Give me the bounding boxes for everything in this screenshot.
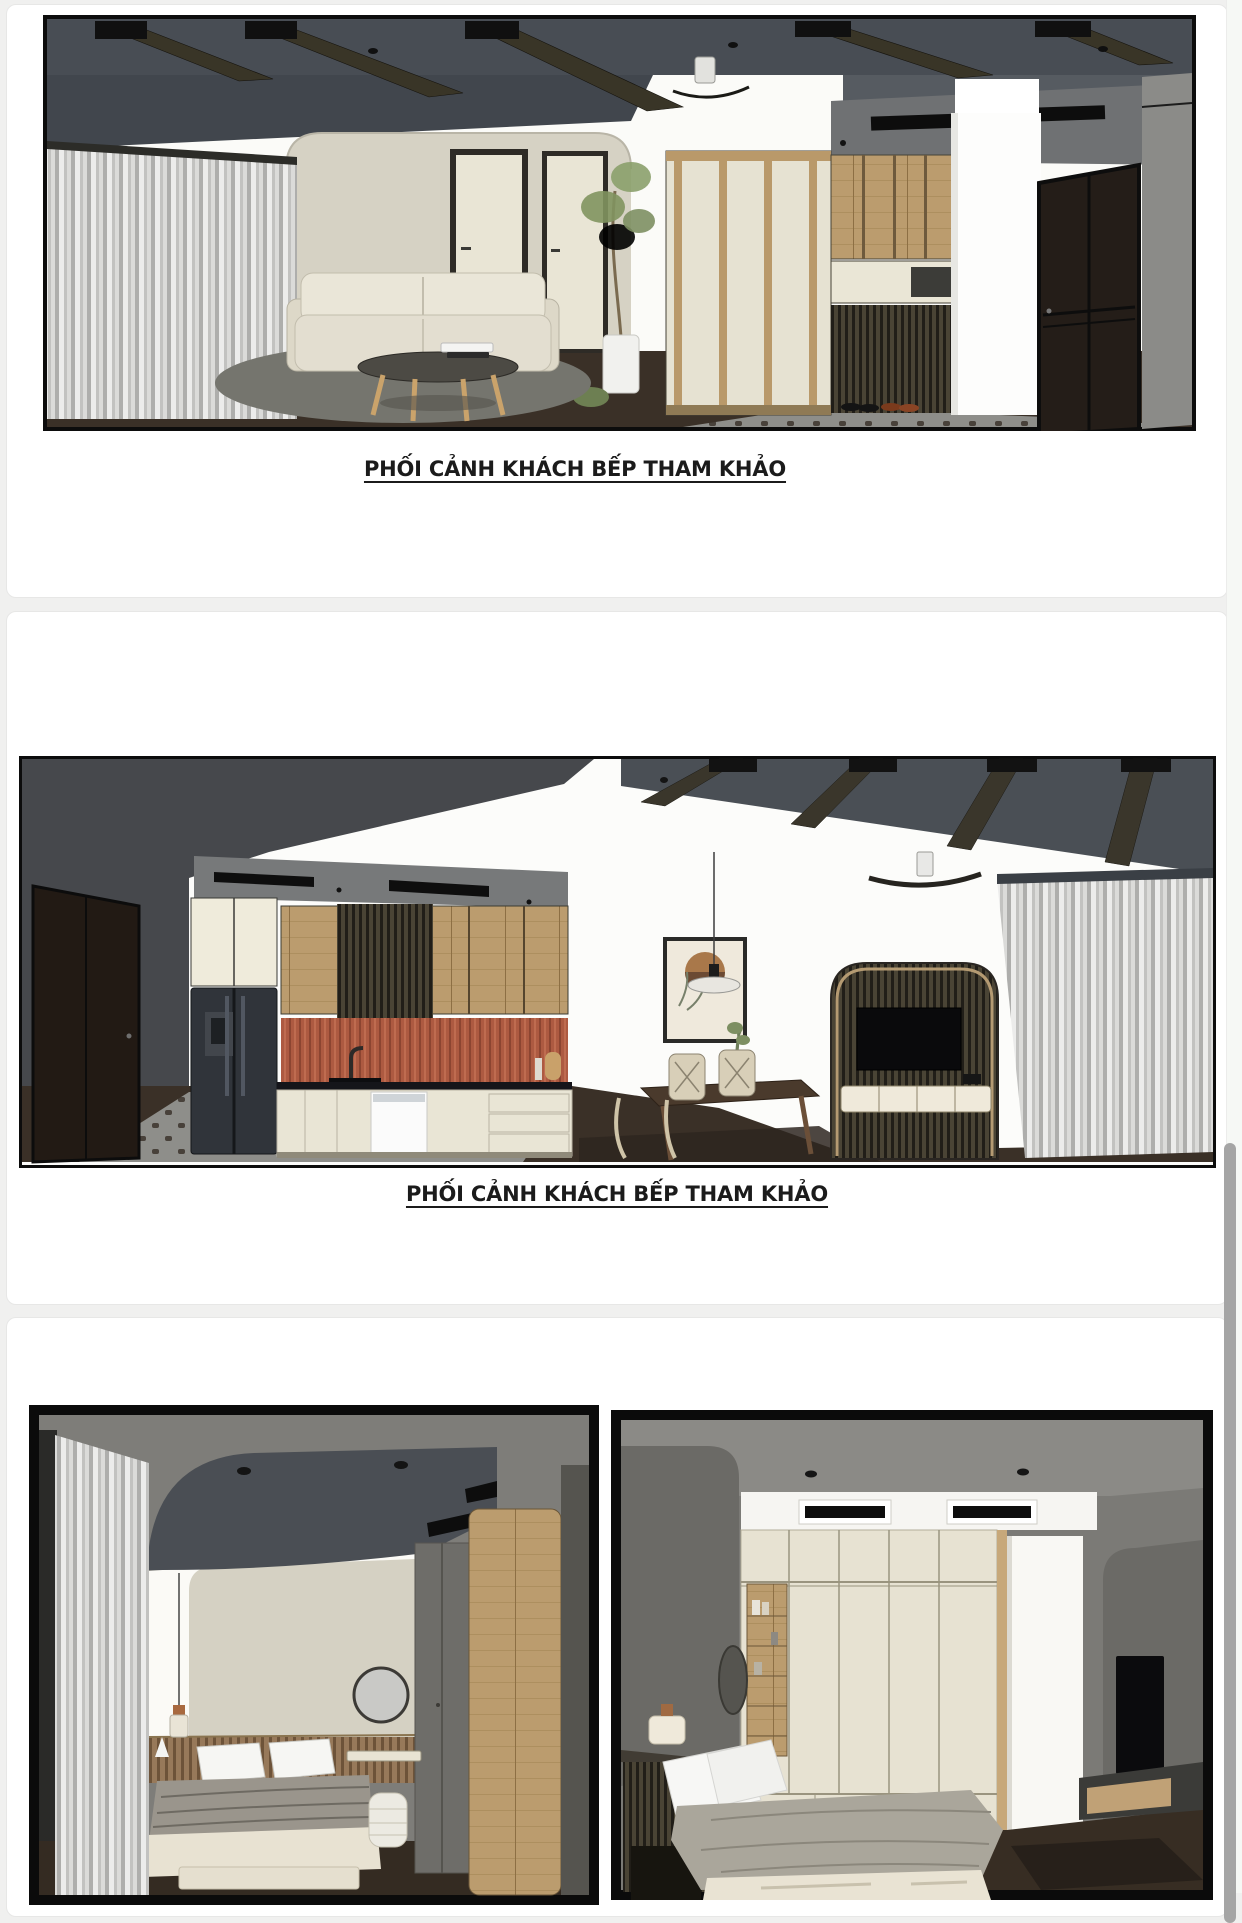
page-panel-1: PHỐI CẢNH KHÁCH BẾP THAM KHẢO — [6, 4, 1228, 598]
living-room-render-image — [43, 15, 1196, 431]
tv-wall — [831, 963, 998, 1159]
round-mirror — [354, 1668, 408, 1722]
entry-wardrobe — [666, 151, 956, 415]
kitchen-dining-render-image — [19, 756, 1216, 1168]
page-panel-3 — [6, 1317, 1228, 1917]
document-viewer: { "document": { "pages": [ { "caption": … — [0, 0, 1242, 1893]
render-caption-2: PHỐI CẢNH KHÁCH BẾP THAM KHẢO — [7, 1178, 1227, 1210]
dark-door — [33, 886, 139, 1162]
right-curtains — [997, 874, 1213, 1158]
doorway — [1007, 1536, 1083, 1832]
render-caption-1: PHỐI CẢNH KHÁCH BẾP THAM KHẢO — [7, 453, 1143, 485]
bedroom-wardrobe-render-image — [611, 1410, 1213, 1900]
curtains — [55, 1435, 149, 1895]
ac-bulkhead — [741, 1492, 1097, 1530]
mirror — [719, 1646, 747, 1714]
scrollbar-track[interactable] — [1226, 0, 1242, 1893]
kitchen-cabinets — [191, 898, 572, 1158]
page-panel-2: PHỐI CẢNH KHÁCH BẾP THAM KHẢO — [6, 611, 1228, 1305]
bedroom-dressing-render-image — [29, 1405, 599, 1905]
scrollbar-thumb[interactable] — [1224, 1143, 1236, 1923]
entry-door — [1039, 165, 1139, 431]
